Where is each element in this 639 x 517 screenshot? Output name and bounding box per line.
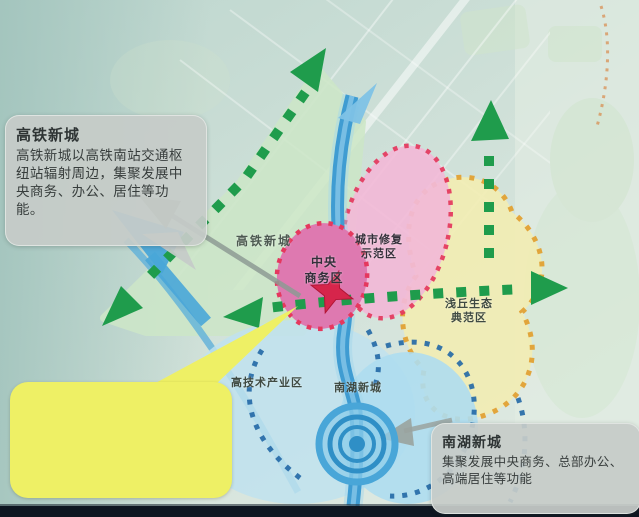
callout-nanhu-title: 南湖新城: [442, 432, 630, 452]
callout-nanhu-newtown: 南湖新城 集聚发展中央商务、总部办公、高端居住等功能: [431, 423, 639, 514]
callout-nanhu-body: 集聚发展中央商务、总部办公、高端居住等功能: [442, 454, 630, 488]
lake-target-rings-icon: [317, 404, 397, 484]
callout-hsr-newtown: 高铁新城 高铁新城以高铁南站交通枢纽站辐射周边，集聚发展中央商务、办公、居住等功…: [5, 115, 207, 246]
planning-map-slide: 中央 商务区 城市修复 示范区 浅丘生态 典范区 高铁新城 高技术产业区 南湖新…: [0, 0, 639, 517]
callout-hsr-title: 高铁新城: [16, 124, 196, 145]
callout-hsr-body: 高铁新城以高铁南站交通枢纽站辐射周边，集聚发展中央商务、办公、居住等功能。: [16, 147, 196, 219]
yellow-note-callout: [10, 382, 232, 498]
